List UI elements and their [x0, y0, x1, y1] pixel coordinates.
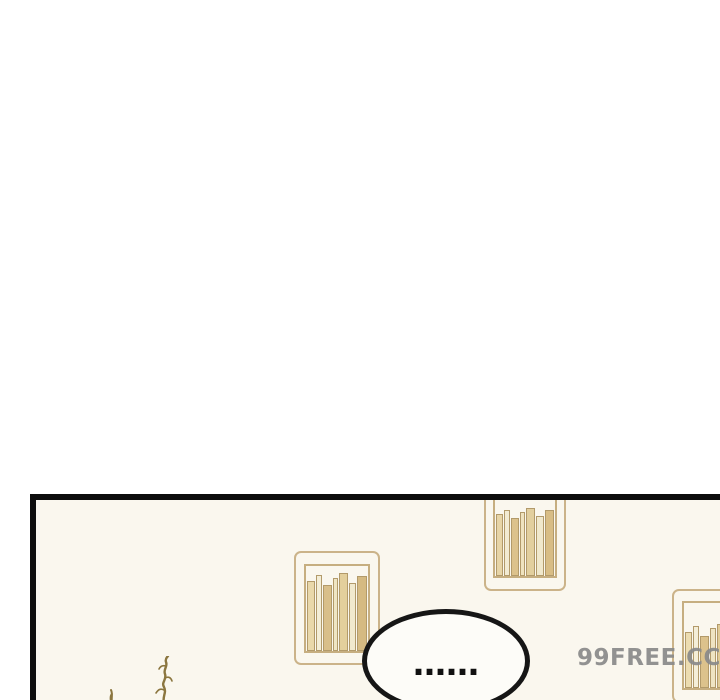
blank-page-area [0, 0, 720, 494]
book-spine [307, 581, 315, 651]
books-row [496, 508, 554, 576]
bookshelf-top [484, 494, 566, 591]
book-spine [526, 508, 535, 576]
book-spine [323, 585, 332, 651]
books-row [307, 573, 367, 651]
book-spine [339, 573, 347, 651]
watermark-text: 99FREE.CC [577, 645, 720, 671]
book-spine [357, 576, 367, 651]
book-spine [545, 510, 554, 576]
shelf-opening [304, 564, 370, 653]
book-spine [496, 514, 503, 576]
book-spine [536, 516, 543, 576]
book-spine [511, 518, 519, 576]
book-spine [504, 510, 510, 576]
book-spine [316, 575, 322, 651]
book-spine [333, 578, 339, 651]
comic-panel: …… 99FREE.CC [30, 494, 720, 700]
shelf-opening [493, 496, 557, 578]
plant-decoration [106, 656, 180, 700]
book-spine [520, 512, 525, 576]
book-spine [349, 583, 356, 651]
speech-bubble: …… [362, 609, 530, 700]
